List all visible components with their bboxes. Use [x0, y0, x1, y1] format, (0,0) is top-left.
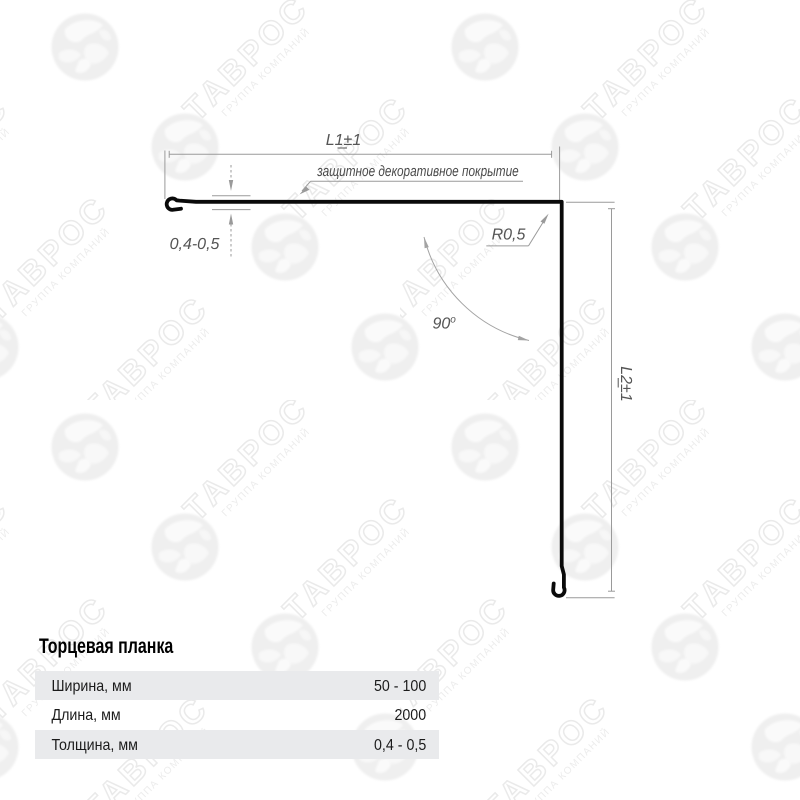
- svg-text:R0,5: R0,5: [492, 227, 526, 244]
- svg-text:0,4-0,5: 0,4-0,5: [170, 236, 220, 253]
- svg-text:90o: 90o: [433, 315, 457, 333]
- svg-text:защитное декоративное покрытие: защитное декоративное покрытие: [316, 163, 518, 180]
- svg-text:L2±1: L2±1: [617, 366, 634, 401]
- svg-text:L1±1: L1±1: [326, 132, 361, 149]
